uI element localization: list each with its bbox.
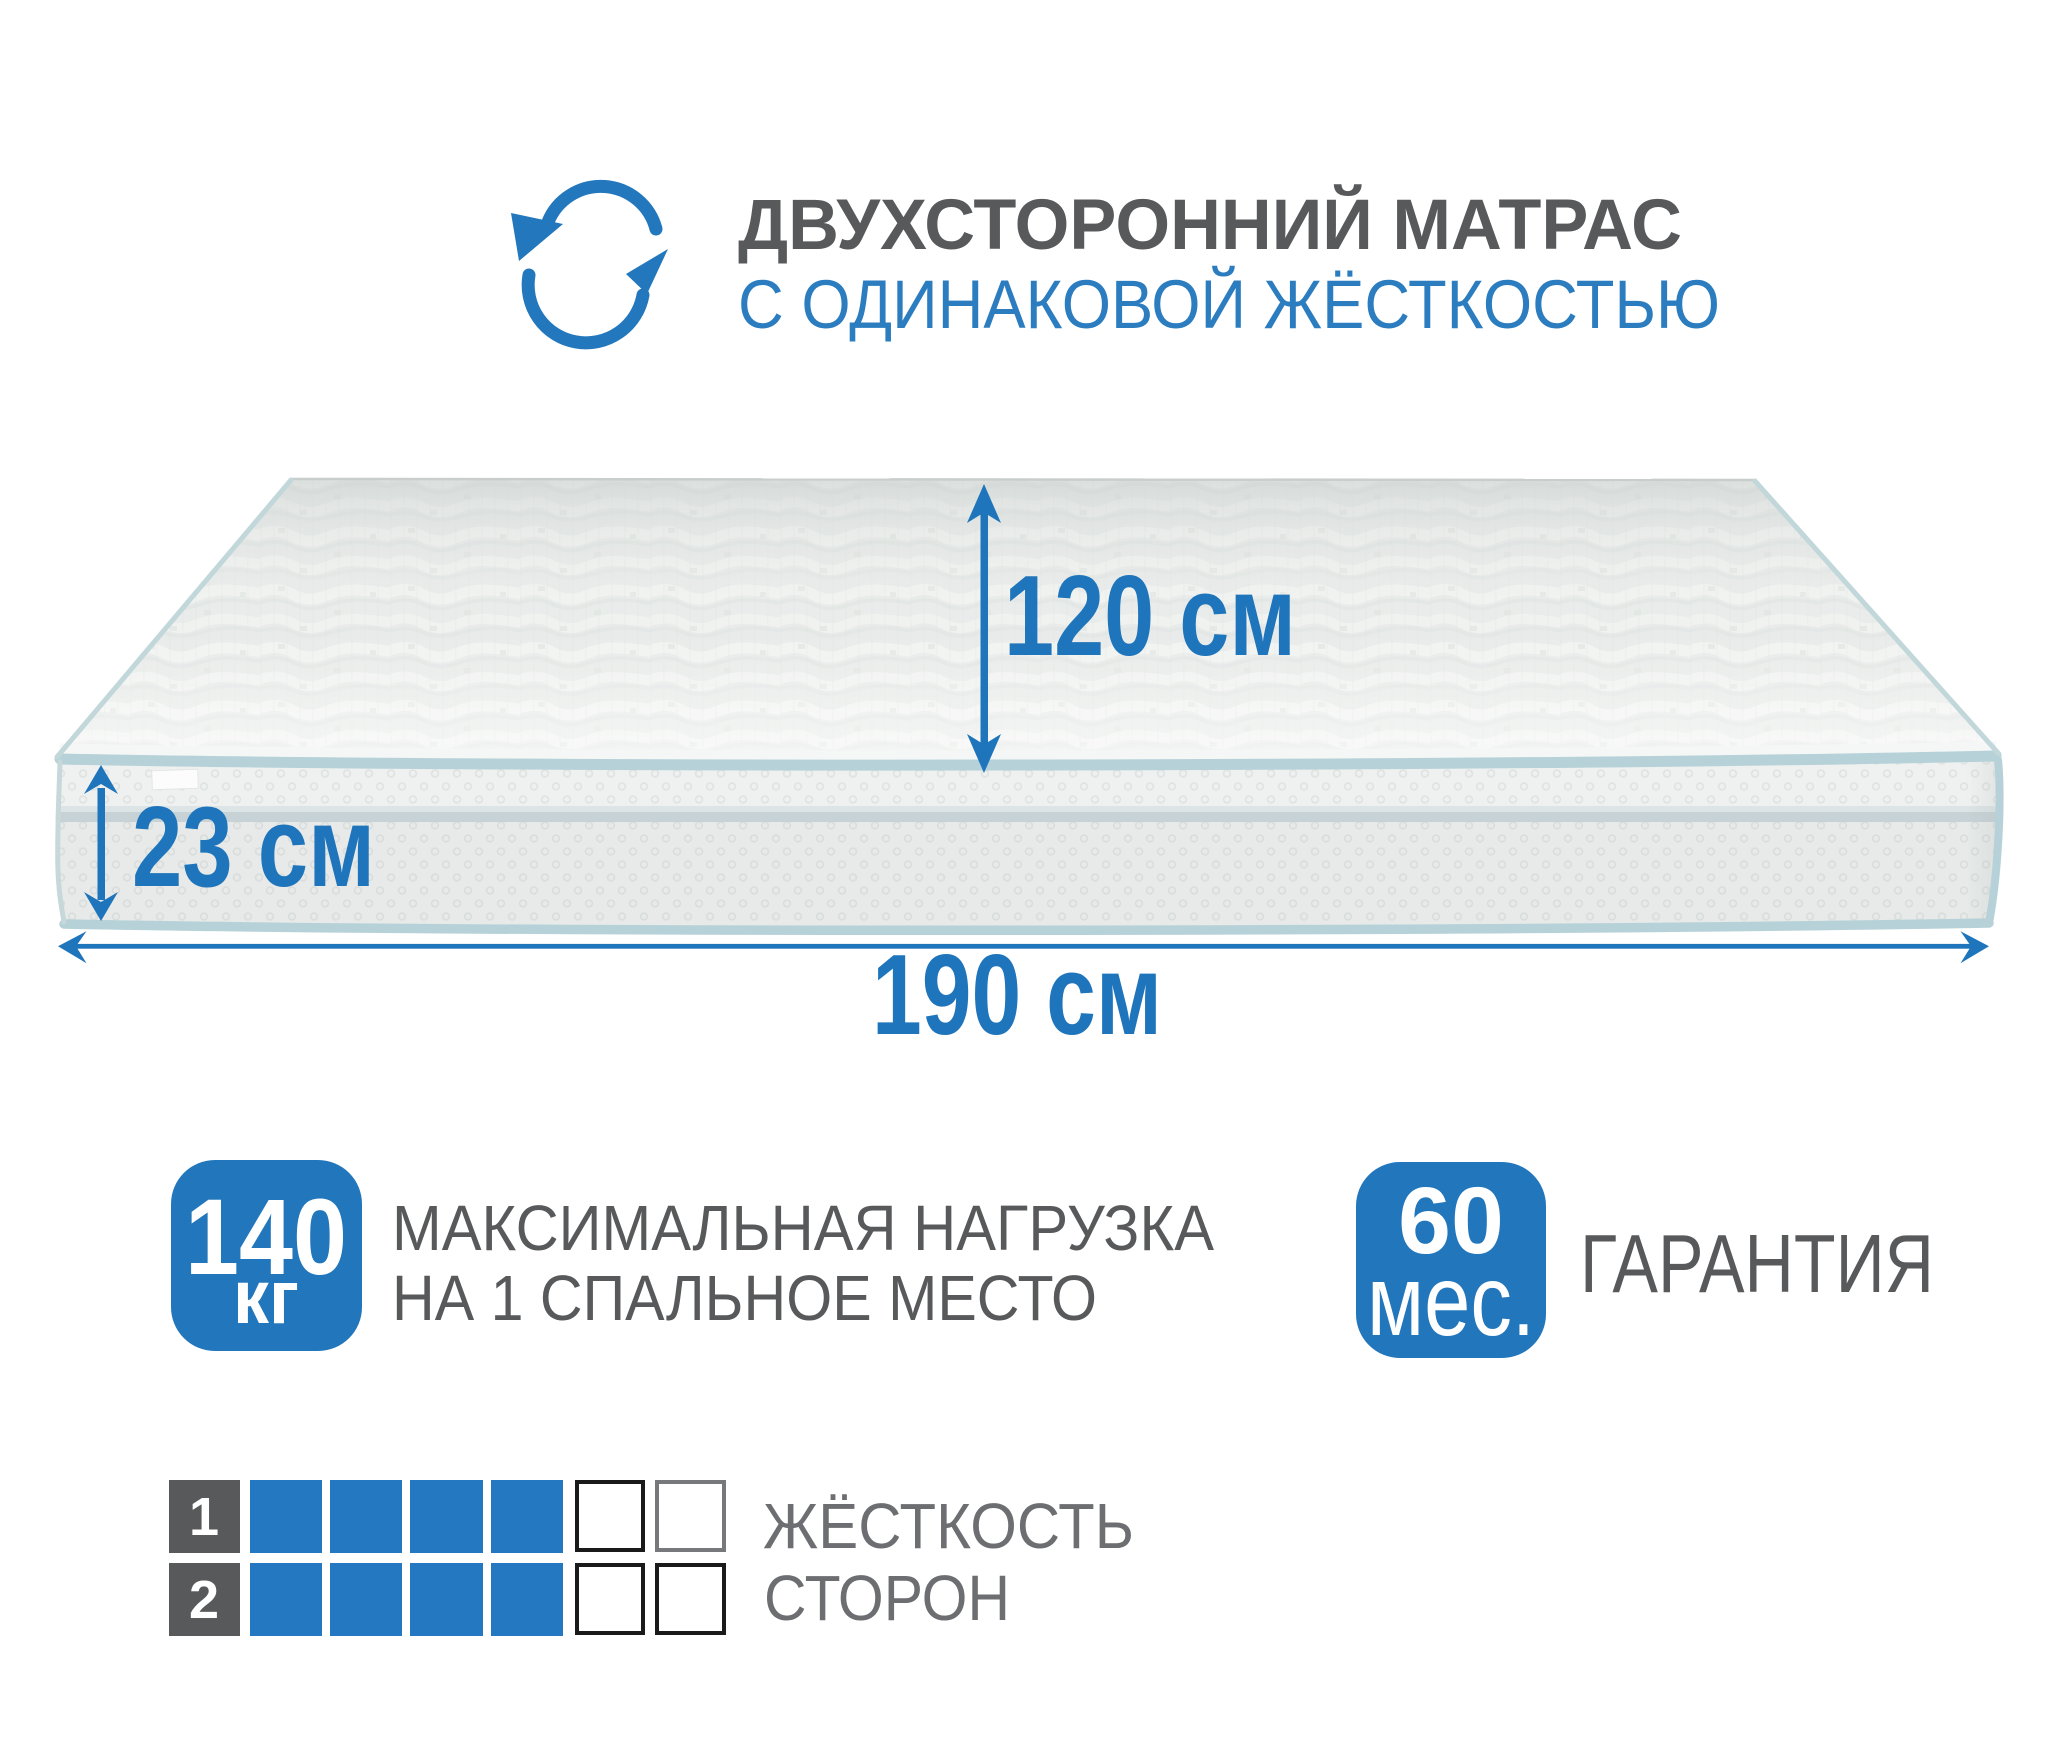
svg-text:190 см: 190 см (872, 932, 1162, 1059)
svg-text:ЖЁСТКОСТЬ: ЖЁСТКОСТЬ (763, 1490, 1134, 1562)
svg-text:МАКСИМАЛЬНАЯ НАГРУЗКА: МАКСИМАЛЬНАЯ НАГРУЗКА (392, 1192, 1214, 1264)
svg-text:1: 1 (189, 1487, 219, 1547)
svg-text:НА 1 СПАЛЬНОЕ МЕСТО: НА 1 СПАЛЬНОЕ МЕСТО (392, 1262, 1097, 1334)
svg-text:23 см: 23 см (132, 784, 375, 911)
svg-text:ДВУХСТОРОННИЙ МАТРАС: ДВУХСТОРОННИЙ МАТРАС (738, 185, 1682, 265)
svg-text:С ОДИНАКОВОЙ ЖЁСТКОСТЬЮ: С ОДИНАКОВОЙ ЖЁСТКОСТЬЮ (738, 266, 1720, 343)
svg-text:СТОРОН: СТОРОН (764, 1562, 1010, 1634)
svg-text:мес.: мес. (1367, 1245, 1535, 1357)
svg-text:120 см: 120 см (1004, 553, 1296, 680)
svg-text:кг: кг (233, 1255, 299, 1340)
svg-text:2: 2 (189, 1570, 219, 1630)
svg-text:ГАРАНТИЯ: ГАРАНТИЯ (1580, 1217, 1934, 1310)
